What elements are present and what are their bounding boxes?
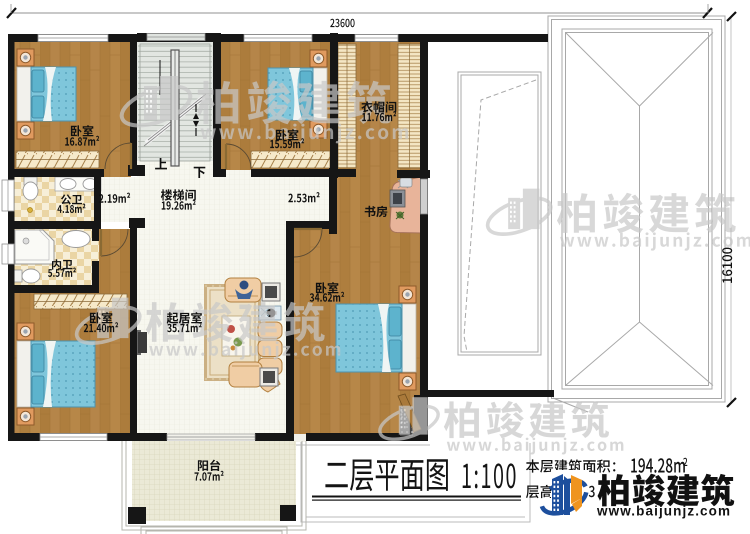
svg-text:www.baijunjz.com: www.baijunjz.com [596, 504, 731, 519]
